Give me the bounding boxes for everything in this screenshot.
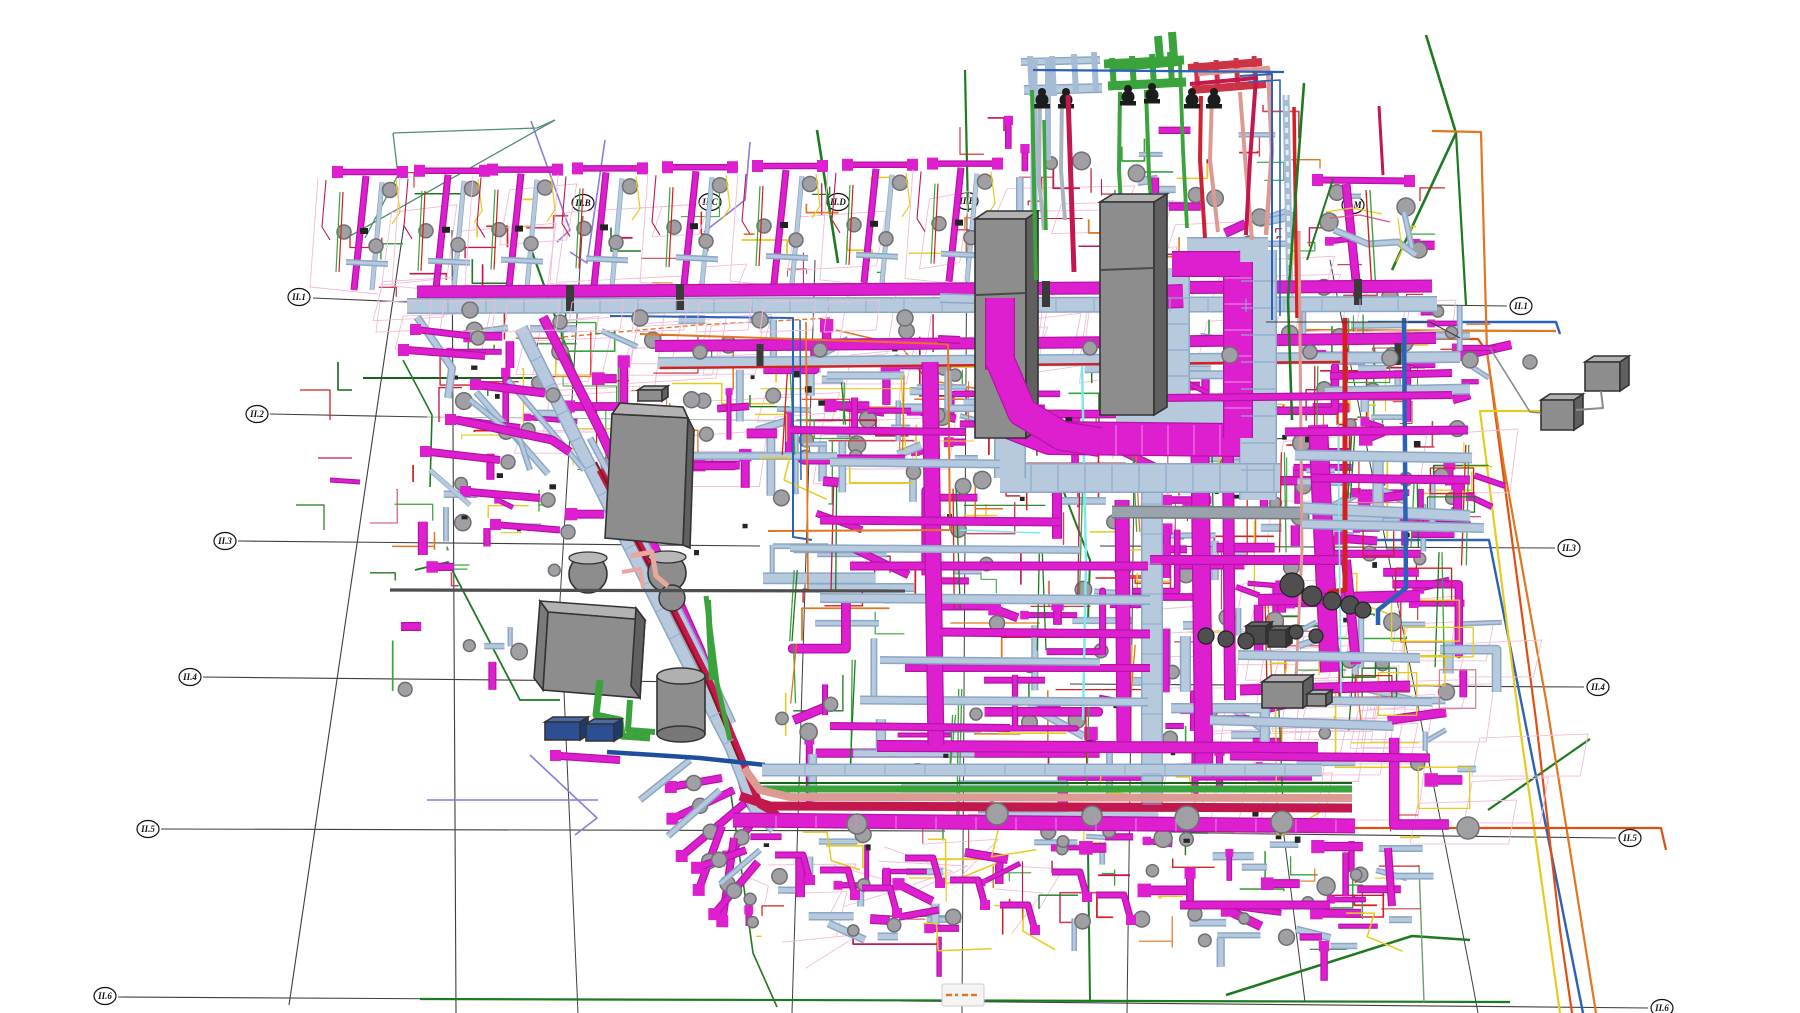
- svg-text:II.5: II.5: [140, 824, 155, 834]
- svg-text:II.6: II.6: [1654, 1003, 1669, 1013]
- svg-text:II.3: II.3: [1561, 543, 1576, 553]
- svg-text:II.5: II.5: [1622, 833, 1637, 843]
- svg-text:II.6: II.6: [97, 991, 112, 1001]
- svg-text:II.4: II.4: [1590, 682, 1605, 692]
- svg-text:II.1: II.1: [1513, 301, 1528, 311]
- svg-text:II.2: II.2: [249, 409, 264, 419]
- svg-text:II.3: II.3: [217, 536, 232, 546]
- svg-text:II.1: II.1: [291, 292, 306, 302]
- svg-text:II.D: II.D: [829, 197, 846, 207]
- svg-text:II.4: II.4: [182, 672, 197, 682]
